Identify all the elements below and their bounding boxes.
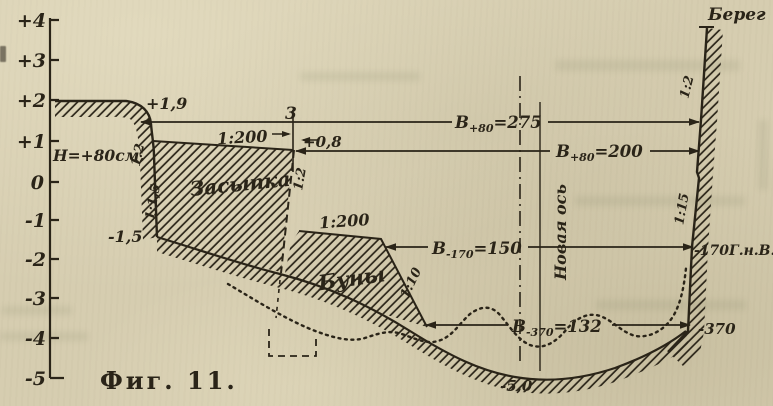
dim-sub: +80 xyxy=(469,122,494,135)
slope-right-upper: 1:2 xyxy=(677,74,697,100)
dim-plus08-label: +0,8 xyxy=(303,133,342,151)
axis-line xyxy=(50,18,64,378)
dim3-label: 3 xyxy=(285,104,297,124)
dim-value: =150 xyxy=(473,239,522,258)
elev-minus370-label: -370 xyxy=(698,320,736,338)
axis-label: -4 xyxy=(25,328,46,350)
bank-label-right: Берег xyxy=(707,5,766,25)
dim-b275-label: В+80=275 xyxy=(454,113,542,135)
axis-label: -1 xyxy=(25,210,46,232)
axis-label: +1 xyxy=(17,131,46,153)
dim-value: =275 xyxy=(493,113,541,132)
dim-value: =200 xyxy=(594,142,643,161)
old-groyne-dashed xyxy=(269,329,316,356)
axis-label: +4 xyxy=(17,10,46,32)
slope-berm-lower: 1:200 xyxy=(318,210,370,232)
arrowhead xyxy=(282,131,291,137)
cross-section-diagram: +4 +3 +2 +1 0 -1 -2 -3 -4 -5 xyxy=(0,0,773,406)
depth-minus50-label: -5,0 xyxy=(500,377,533,395)
dim-sub: -170 xyxy=(446,248,474,261)
new-axis-label: Новая ось xyxy=(551,184,570,281)
axis-label: -3 xyxy=(25,288,46,310)
scanned-figure-page: +4 +3 +2 +1 0 -1 -2 -3 -4 -5 xyxy=(0,0,773,406)
axis-label: -2 xyxy=(25,249,46,271)
slope-right-lower: 1:15 xyxy=(672,192,692,226)
low-water-label: -170Г.н.В. xyxy=(694,243,773,259)
arrowhead xyxy=(689,118,700,126)
axis-label: 0 xyxy=(31,172,44,194)
dim-sub: -370 xyxy=(526,326,554,339)
figure-caption: Фиг. 11. xyxy=(100,366,238,395)
slope-fill-edge: 1:2 xyxy=(291,167,310,192)
dim-base: В xyxy=(431,239,446,258)
axis-label: +3 xyxy=(17,50,46,72)
dim-base: В xyxy=(555,142,570,161)
elev-minus15-label: -1,5 xyxy=(108,227,142,246)
elev-plus19-label: +1,9 xyxy=(146,94,187,113)
elevation-axis: +4 +3 +2 +1 0 -1 -2 -3 -4 -5 xyxy=(17,10,64,390)
dim-b150-label: В-170=150 xyxy=(431,239,522,261)
arrowhead xyxy=(425,321,436,329)
dim-base: В xyxy=(511,317,526,336)
slope-berm-upper: 1:200 xyxy=(217,127,268,149)
dim-b200-label: В+80=200 xyxy=(555,142,643,164)
dim-b132-label: В-370=132 xyxy=(511,317,602,339)
dim-sub: +80 xyxy=(570,151,595,164)
axis-label: -5 xyxy=(25,368,46,390)
axis-label: +2 xyxy=(17,90,46,112)
dim-value: =132 xyxy=(553,317,601,336)
dim-base: В xyxy=(454,113,469,132)
